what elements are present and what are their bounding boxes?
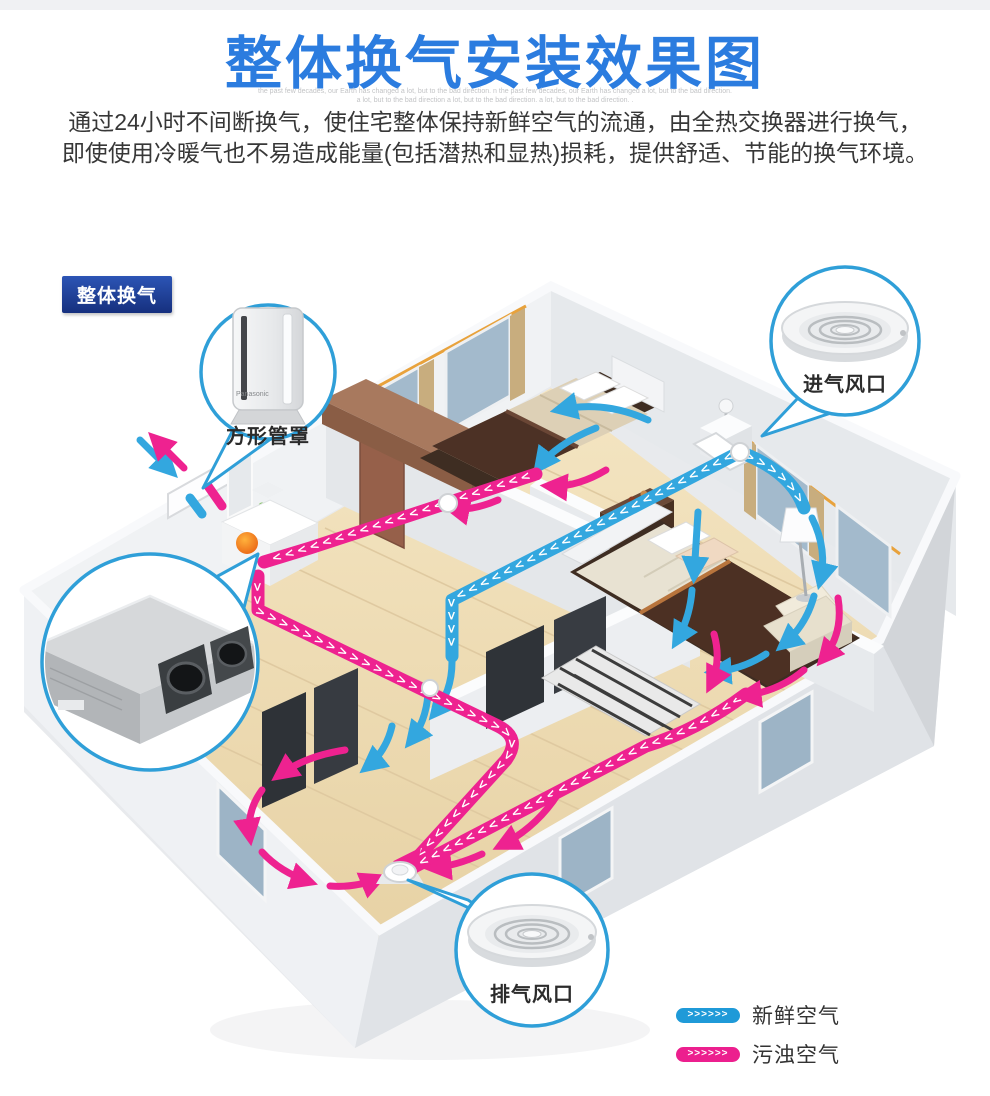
exhaust-vent-label: 排气风口 <box>460 978 604 1007</box>
square-duct-cover-label: 方形管罩 <box>196 420 340 449</box>
exhaust-outlet-arrow <box>154 438 184 468</box>
house-diagram: >>>>>>>>>>>>>>>>>>>>>>>>>>>>>>>>>>>> >>>… <box>0 0 990 1096</box>
intake-vent-label: 进气风口 <box>773 368 917 397</box>
polluted-air-label: 污浊空气 <box>752 1039 840 1069</box>
dark-door <box>262 692 306 808</box>
duct-connector <box>439 494 457 512</box>
duct-connector <box>731 443 749 461</box>
hood-light <box>236 532 258 554</box>
dark-door <box>314 668 358 784</box>
fresh-air-arrow-strip: >>>>>> <box>676 1008 740 1023</box>
curtain <box>510 308 525 401</box>
round-vent-product <box>468 905 596 967</box>
round-vent-product <box>782 302 908 362</box>
fresh-air-label: 新鲜空气 <box>752 1000 840 1030</box>
legend-polluted-air: >>>>>> 污浊空气 <box>676 1039 840 1069</box>
section-tag: 整体换气 <box>62 276 172 313</box>
legend: >>>>>> 新鲜空气 >>>>>> 污浊空气 <box>676 1000 840 1078</box>
legend-fresh-air: >>>>>> 新鲜空气 <box>676 1000 840 1030</box>
square-duct-cover-product <box>231 308 305 424</box>
intake-vent-callout <box>762 267 919 436</box>
polluted-air-arrow-strip: >>>>>> <box>676 1047 740 1062</box>
duct-connector <box>422 680 438 696</box>
page: 整体换气安装效果图 the past few decades, our Eart… <box>0 0 990 1096</box>
ground-shadow <box>210 1000 650 1060</box>
brand-label: Panasonic <box>236 391 296 398</box>
